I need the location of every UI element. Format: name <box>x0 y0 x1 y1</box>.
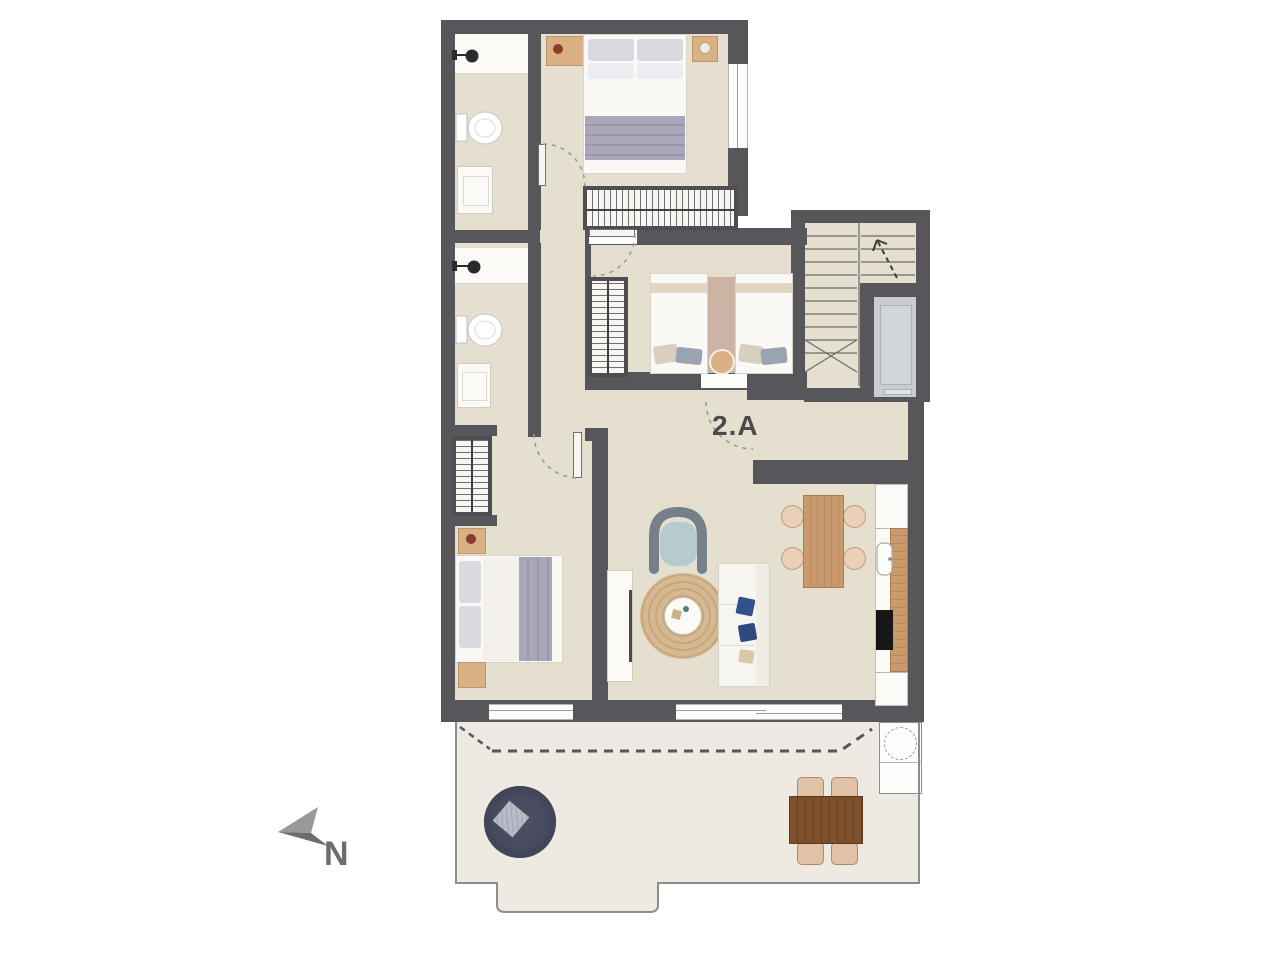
cooktop <box>876 610 893 650</box>
sofa-seam <box>720 645 754 646</box>
wall-west <box>441 20 455 722</box>
terrace-table <box>789 796 863 844</box>
terrace-shower-divider <box>879 762 922 763</box>
plant-desk <box>553 44 563 54</box>
kitchen-counter-wood <box>890 528 908 672</box>
pillow <box>459 561 481 603</box>
wall-stair-north <box>791 210 930 223</box>
unit-label: 2.A <box>712 410 759 442</box>
wall-bath2-east <box>528 243 541 437</box>
lamp <box>699 42 711 54</box>
window-living-slider <box>676 704 842 720</box>
pillow <box>588 39 634 61</box>
wall-stair-west <box>791 210 805 400</box>
wall-east <box>908 396 924 722</box>
wall-kitchen-north <box>753 460 924 484</box>
wall-closet-top <box>441 425 497 436</box>
coffee-table <box>664 597 702 635</box>
wall-bath2-north <box>441 230 540 243</box>
pillow <box>637 63 683 79</box>
wall-closet-bottom <box>441 515 497 526</box>
desk-bedroom1 <box>546 36 588 66</box>
wardrobe-closet <box>452 436 492 516</box>
wardrobe-rail <box>587 209 734 211</box>
pillow-tan <box>738 649 755 664</box>
wardrobe-bedroom1 <box>583 186 738 230</box>
sink-bath1-basin <box>463 176 489 206</box>
wall-north <box>441 20 748 34</box>
sink-bath2-basin <box>462 372 487 401</box>
terrace-chair <box>797 842 824 865</box>
entry-door-opening <box>701 374 747 388</box>
dining-chair <box>781 547 804 570</box>
dining-chair <box>843 505 866 528</box>
elevator-cab-inner <box>880 305 912 385</box>
wall-bedroom3-east <box>592 428 608 715</box>
north-label: N <box>324 835 349 874</box>
pillow <box>760 347 788 366</box>
shower-tray-bath2 <box>455 248 528 284</box>
pillow <box>588 63 634 79</box>
duvet-bedroom3 <box>483 557 519 661</box>
slider-panel-line2 <box>756 713 842 714</box>
nightstand-bedroom3-bottom <box>458 662 486 688</box>
wall-bath1-divider <box>528 34 541 230</box>
wardrobe-rail <box>471 440 473 512</box>
bed-band <box>736 283 792 293</box>
wardrobe-rail <box>607 281 609 373</box>
dining-chair <box>843 547 866 570</box>
wardrobe-twin-bedroom <box>588 277 628 377</box>
window-bedroom3-line <box>489 710 573 711</box>
terrace-chair <box>831 842 858 865</box>
slider-panel-line1 <box>676 710 766 711</box>
door-leaf-bath1 <box>538 144 546 186</box>
door-leaf-bedroom3 <box>573 432 582 478</box>
side-table-twin <box>709 349 735 375</box>
window-bedroom3 <box>489 704 573 720</box>
bed-band <box>651 283 707 293</box>
blanket-bedroom1 <box>585 116 685 160</box>
window-bedroom1-line <box>737 64 738 148</box>
dining-chair <box>781 505 804 528</box>
terrace-shower-drain <box>884 727 917 760</box>
wall-stair-east <box>916 210 930 402</box>
floor-terrace-bump <box>497 880 659 913</box>
floor-plan-canvas: 2.A N <box>0 0 1280 960</box>
wall-elevator-left <box>860 283 874 400</box>
pillow <box>459 606 481 648</box>
pillow-blue <box>735 596 755 616</box>
pillow <box>637 39 683 61</box>
blanket-bedroom3 <box>519 557 552 661</box>
door-leaf-twin <box>589 229 635 237</box>
pillow-blue <box>738 623 758 643</box>
kitchen-cabinet-divider <box>875 672 908 673</box>
wall-entry-step <box>747 385 795 400</box>
dining-table <box>803 495 844 588</box>
sofa-back <box>756 565 769 685</box>
north-arrow-icon <box>278 807 328 846</box>
elevator-door <box>884 389 912 395</box>
pillow <box>675 347 703 366</box>
window-bedroom1 <box>728 64 748 148</box>
table-decor <box>683 606 689 612</box>
tv <box>629 590 632 662</box>
shower-tray-bath1 <box>455 34 528 74</box>
plant-nightstand <box>466 534 476 544</box>
